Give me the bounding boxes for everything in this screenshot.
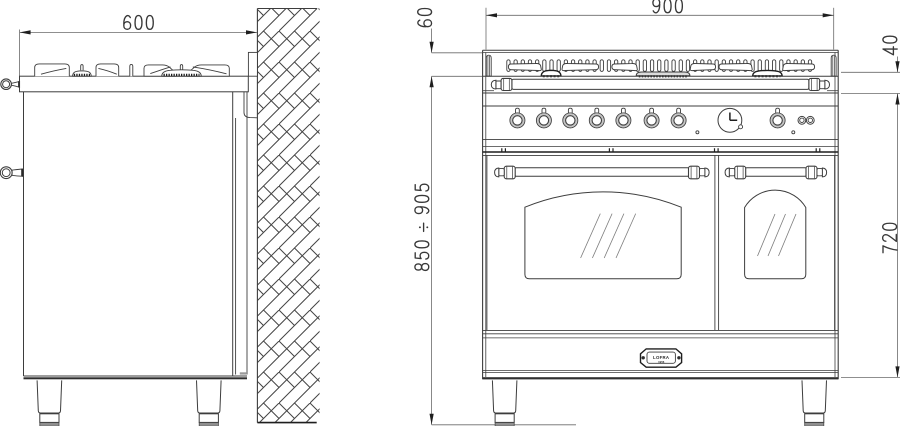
svg-text:1956: 1956: [658, 360, 665, 364]
